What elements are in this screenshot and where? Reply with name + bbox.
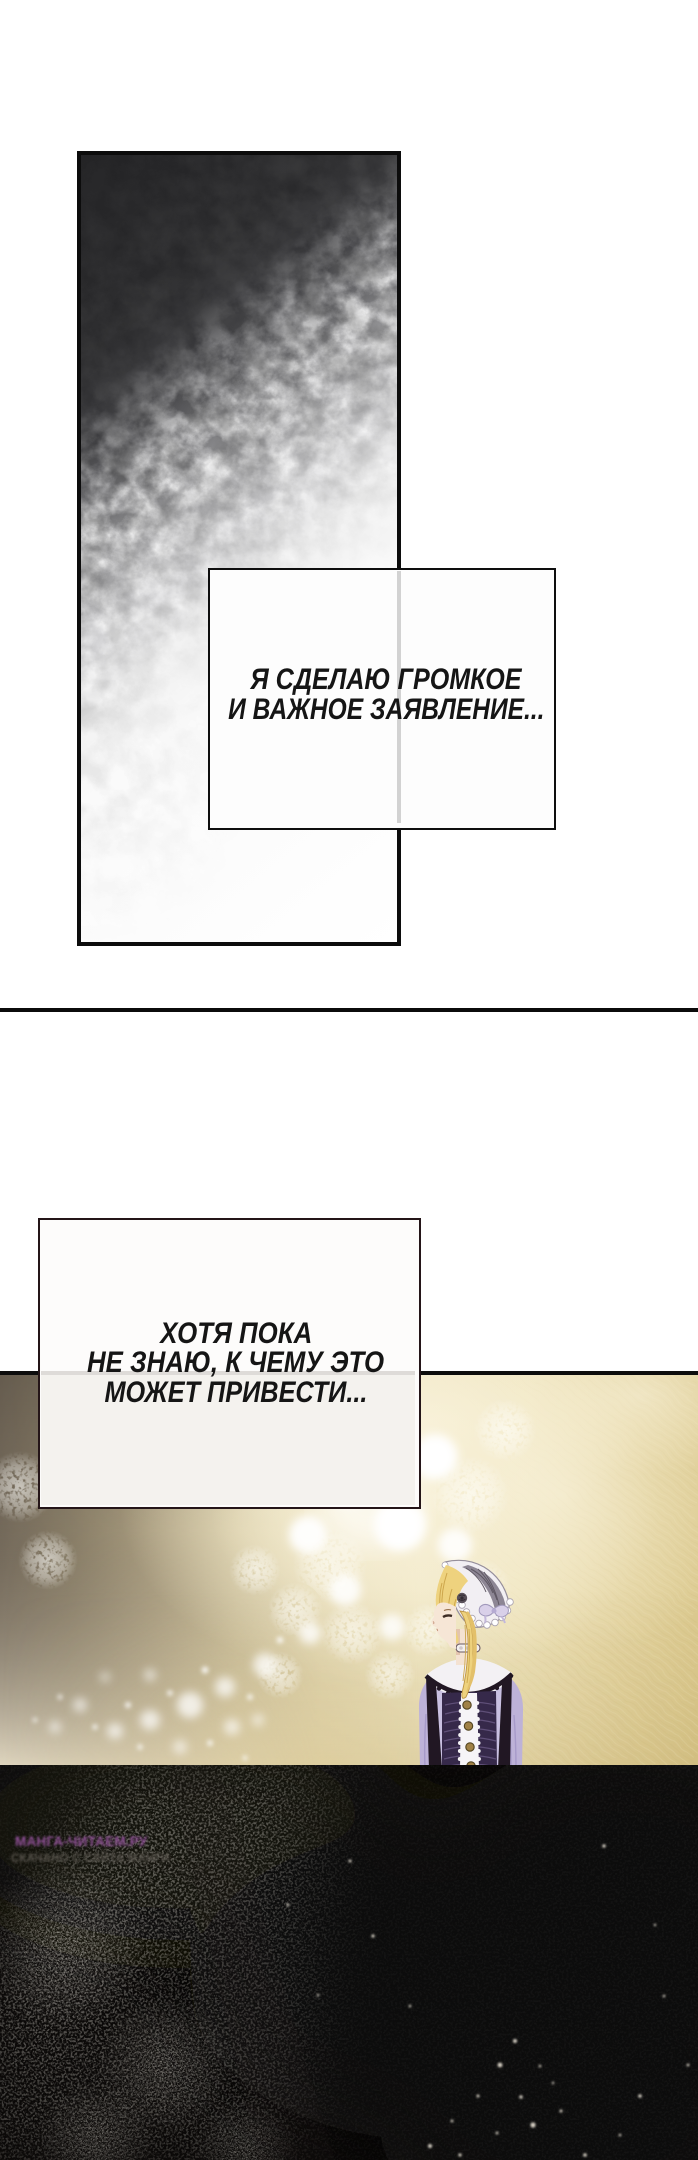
svg-text:МАНГА-ЧИТАЕМ.РУ: МАНГА-ЧИТАЕМ.РУ [15,1834,148,1849]
svg-text:СКАЧАНО С САЙТА МАНГИ: СКАЧАНО С САЙТА МАНГИ [11,1852,170,1865]
